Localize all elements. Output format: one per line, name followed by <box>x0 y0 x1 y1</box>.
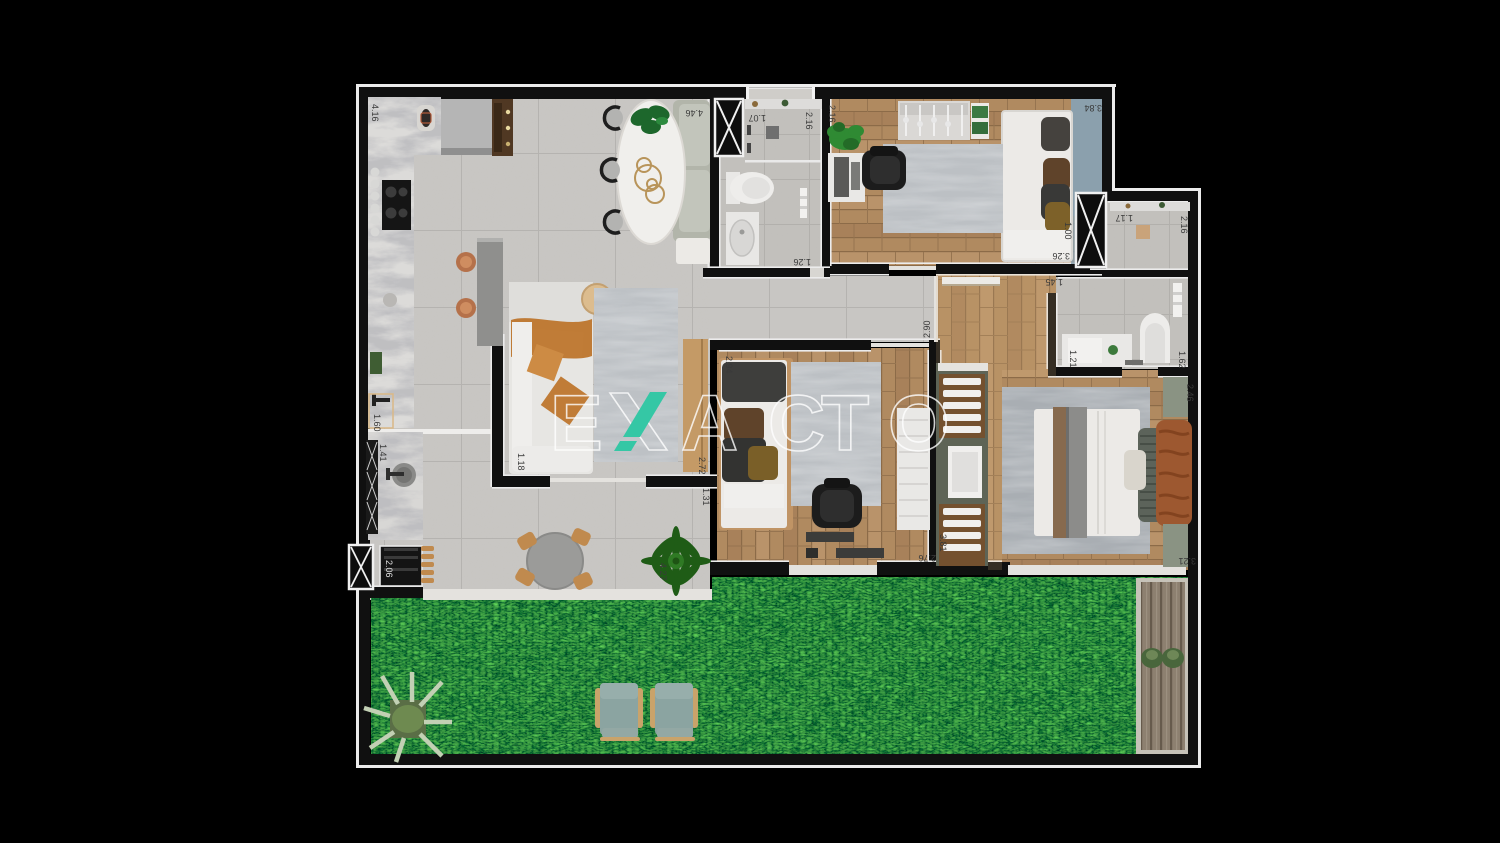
svg-text:1.00: 1.00 <box>1063 222 1073 240</box>
svg-text:4.16: 4.16 <box>370 104 380 122</box>
svg-text:1.18: 1.18 <box>516 453 526 471</box>
svg-text:1.41: 1.41 <box>378 444 388 462</box>
svg-text:2.06: 2.06 <box>384 560 394 578</box>
svg-text:4.27: 4.27 <box>658 563 668 581</box>
svg-text:2.76: 2.76 <box>918 553 936 563</box>
svg-text:1.21: 1.21 <box>1068 350 1078 368</box>
svg-text:T: T <box>821 378 869 467</box>
svg-text:2.16: 2.16 <box>804 112 814 130</box>
svg-text:1.17: 1.17 <box>1115 213 1133 223</box>
svg-text:2.94: 2.94 <box>724 356 734 374</box>
svg-text:1.31: 1.31 <box>701 488 711 506</box>
svg-text:E: E <box>550 378 603 467</box>
svg-text:C: C <box>768 378 825 467</box>
svg-text:O: O <box>888 378 949 467</box>
svg-text:3.21: 3.21 <box>1178 556 1196 566</box>
svg-text:1.07: 1.07 <box>748 113 766 123</box>
svg-text:3.26: 3.26 <box>1052 251 1070 261</box>
svg-text:1.62: 1.62 <box>1177 351 1187 369</box>
svg-text:A: A <box>681 378 738 467</box>
svg-text:2.46: 2.46 <box>1185 384 1195 402</box>
svg-text:1.45: 1.45 <box>1045 277 1063 287</box>
svg-text:4.46: 4.46 <box>685 108 703 118</box>
svg-text:1.60: 1.60 <box>372 414 382 432</box>
svg-text:2.16: 2.16 <box>827 105 837 123</box>
svg-text:2.16: 2.16 <box>1179 216 1189 234</box>
svg-text:2.90: 2.90 <box>922 320 932 338</box>
svg-text:1.26: 1.26 <box>793 257 811 267</box>
svg-text:3.84: 3.84 <box>1084 103 1102 113</box>
svg-text:3.81: 3.81 <box>938 534 948 552</box>
